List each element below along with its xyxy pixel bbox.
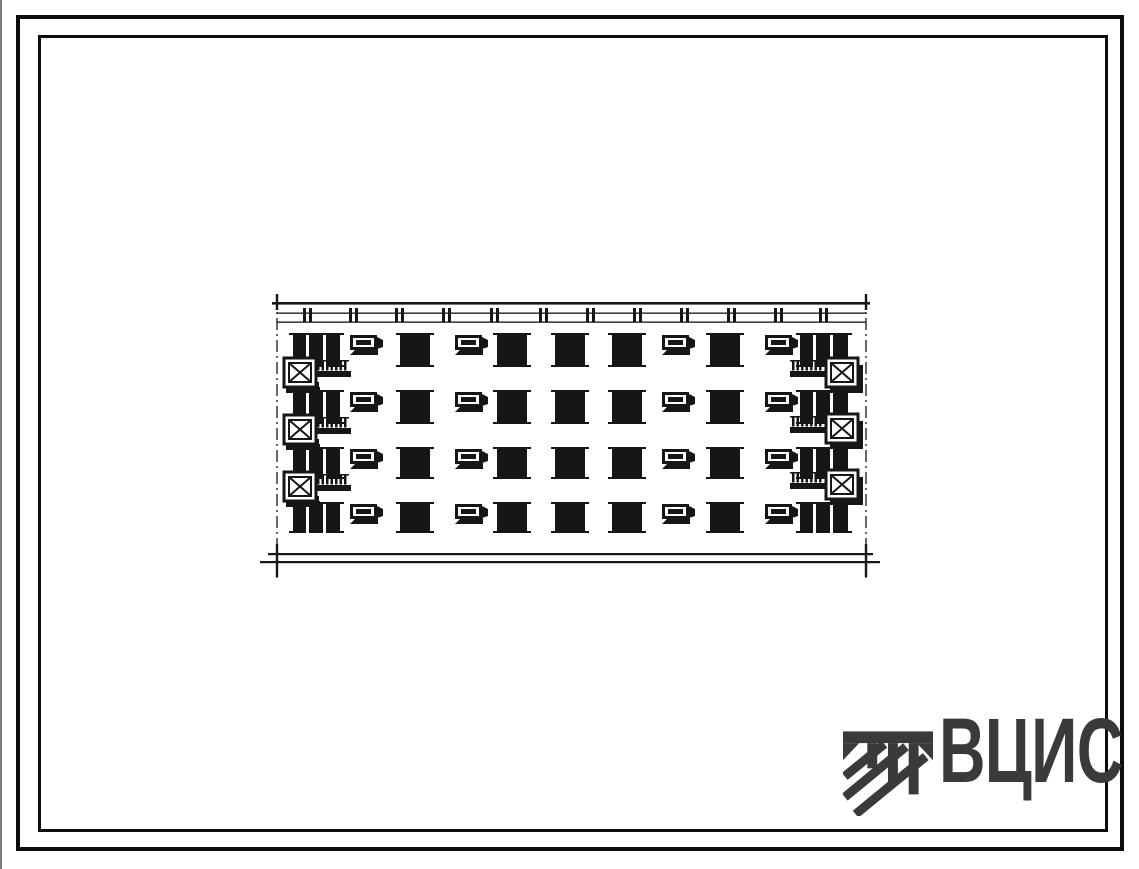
ground-line — [268, 553, 873, 555]
window-pane — [710, 502, 740, 533]
chimney-tick — [780, 308, 783, 322]
railing-top-rail — [315, 417, 349, 419]
chimney-tick — [395, 308, 398, 322]
vent-core — [668, 340, 683, 345]
window — [396, 333, 434, 367]
vent-window — [765, 335, 798, 355]
vent-latch — [377, 394, 383, 406]
balcony-left — [284, 358, 351, 393]
window — [608, 333, 646, 367]
vent-window — [765, 449, 798, 469]
railing-top-rail — [315, 360, 349, 362]
axis-ground-tick — [276, 544, 278, 577]
railing-baluster — [801, 474, 804, 483]
vent-latch — [792, 394, 798, 406]
window-pane — [612, 502, 642, 533]
vent-window — [455, 335, 488, 355]
vcis-logo-text: ВЦИС — [939, 708, 1123, 794]
chimney-tick — [490, 308, 493, 322]
balcony-left — [284, 472, 351, 507]
railing-baluster — [801, 418, 804, 427]
railing-top-rail — [790, 472, 824, 474]
window-pane — [555, 390, 585, 424]
window — [551, 447, 589, 479]
chimney-tick — [401, 308, 404, 322]
window-pane — [710, 447, 740, 479]
double-window — [796, 502, 852, 533]
railing-baluster — [331, 419, 334, 428]
scanned-drawing-sheet: ВЦИС — [0, 0, 1139, 869]
railing-baluster — [792, 418, 795, 427]
window-pane — [497, 502, 527, 533]
window-pane — [400, 333, 430, 367]
railing-baluster — [326, 419, 329, 428]
railing-baluster — [819, 418, 822, 427]
mullion-gap — [830, 504, 833, 533]
vent-core — [771, 397, 786, 402]
balcony-floor-slab — [315, 485, 351, 491]
window — [396, 390, 434, 424]
building-elevation-drawing — [260, 293, 880, 583]
vent-latch — [689, 451, 695, 463]
vent-window — [765, 392, 798, 412]
window — [608, 502, 646, 533]
vent-window — [350, 449, 383, 469]
balcony-left — [284, 415, 351, 450]
railing-baluster — [810, 362, 813, 371]
railing-baluster — [326, 362, 329, 371]
chimney-tick — [303, 308, 306, 322]
chimney-tick — [309, 308, 312, 322]
chimney-tick — [539, 308, 542, 322]
vent-latch — [482, 506, 488, 518]
vent-window — [350, 335, 383, 355]
vent-window — [662, 504, 695, 524]
balcony-floor-slab — [790, 427, 826, 433]
railing-baluster — [344, 419, 347, 428]
window — [551, 390, 589, 424]
chimney-tick — [819, 308, 822, 322]
vent-window — [455, 449, 488, 469]
window — [706, 390, 744, 424]
window-pane — [497, 333, 527, 367]
railing-baluster — [806, 474, 809, 483]
railing-baluster — [335, 362, 338, 371]
window — [551, 502, 589, 533]
window — [706, 447, 744, 479]
vent-core — [356, 340, 371, 345]
balcony-floor-slab — [790, 371, 826, 377]
vent-core — [771, 340, 786, 345]
chimney-tick — [592, 308, 595, 322]
scan-edge-artifact — [0, 0, 2, 869]
railing-baluster — [810, 418, 813, 427]
window-pane — [497, 447, 527, 479]
vent-window — [662, 335, 695, 355]
window — [706, 502, 744, 533]
railing-baluster — [797, 418, 800, 427]
vent-latch — [377, 451, 383, 463]
window-pane — [710, 333, 740, 367]
railing-baluster — [806, 362, 809, 371]
vent-core — [356, 397, 371, 402]
window — [608, 447, 646, 479]
ground-line — [260, 561, 880, 563]
chimney-tick — [448, 308, 451, 322]
chimney-tick — [686, 308, 689, 322]
railing-top-rail — [315, 474, 349, 476]
railing-baluster — [331, 476, 334, 485]
window — [706, 333, 744, 367]
vent-latch — [792, 337, 798, 349]
vent-window — [455, 392, 488, 412]
window-pane — [555, 333, 585, 367]
vent-core — [461, 340, 476, 345]
railing-baluster — [322, 476, 325, 485]
vent-window — [765, 504, 798, 524]
vent-window — [662, 449, 695, 469]
vent-core — [356, 454, 371, 459]
chimney-tick — [680, 308, 683, 322]
railing-baluster — [340, 419, 343, 428]
vcis-logo-icon — [843, 726, 933, 816]
chimney-tick — [733, 308, 736, 322]
chimney-tick — [774, 308, 777, 322]
axis-ground-tick — [865, 544, 867, 577]
vent-core — [771, 509, 786, 514]
window-pane — [400, 502, 430, 533]
vent-core — [461, 509, 476, 514]
railing-baluster — [326, 476, 329, 485]
chimney-tick — [727, 308, 730, 322]
balcony-floor-slab — [315, 428, 351, 434]
railing-baluster — [344, 476, 347, 485]
mullion-gap — [306, 504, 309, 533]
building-elevation-svg — [260, 293, 880, 583]
vent-window — [350, 392, 383, 412]
railing-baluster — [819, 474, 822, 483]
chimney-tick — [633, 308, 636, 322]
window — [396, 502, 434, 533]
window-pane — [612, 447, 642, 479]
railing-baluster — [797, 474, 800, 483]
vent-latch — [792, 506, 798, 518]
window-pane — [400, 390, 430, 424]
balcony-floor-slab — [315, 371, 351, 377]
railing-baluster — [322, 419, 325, 428]
window-pane — [555, 447, 585, 479]
vent-latch — [792, 451, 798, 463]
window — [493, 333, 531, 367]
vent-window — [662, 392, 695, 412]
railing-baluster — [340, 362, 343, 371]
vent-latch — [689, 394, 695, 406]
vent-latch — [377, 337, 383, 349]
vent-core — [461, 454, 476, 459]
chimney-tick — [586, 308, 589, 322]
vcis-logo: ВЦИС — [843, 720, 1139, 816]
vent-core — [668, 454, 683, 459]
railing-baluster — [801, 362, 804, 371]
railing-baluster — [792, 474, 795, 483]
vent-latch — [482, 451, 488, 463]
railing-baluster — [344, 362, 347, 371]
railing-baluster — [815, 474, 818, 483]
cornice-line — [277, 313, 866, 314]
vent-core — [461, 397, 476, 402]
vent-window — [455, 504, 488, 524]
railing-baluster — [819, 362, 822, 371]
mullion-gap — [813, 504, 816, 533]
railing-baluster — [335, 476, 338, 485]
vent-core — [356, 509, 371, 514]
cornice-line — [277, 322, 866, 323]
railing-baluster — [792, 362, 795, 371]
chimney-tick — [349, 308, 352, 322]
window — [608, 390, 646, 424]
railing-baluster — [810, 474, 813, 483]
chimney-tick — [825, 308, 828, 322]
mullion-gap — [323, 504, 326, 533]
window-pane — [612, 390, 642, 424]
vent-core — [668, 397, 683, 402]
vent-core — [771, 454, 786, 459]
railing-baluster — [815, 418, 818, 427]
vent-latch — [689, 506, 695, 518]
vent-window — [350, 504, 383, 524]
window — [493, 390, 531, 424]
window-pane — [555, 502, 585, 533]
railing-top-rail — [790, 416, 824, 418]
railing-baluster — [340, 476, 343, 485]
window-pane — [400, 447, 430, 479]
vent-core — [668, 509, 683, 514]
railing-baluster — [335, 419, 338, 428]
railing-baluster — [815, 362, 818, 371]
vent-latch — [482, 337, 488, 349]
railing-baluster — [797, 362, 800, 371]
window — [493, 447, 531, 479]
window — [493, 502, 531, 533]
window — [396, 447, 434, 479]
roof-line — [272, 302, 870, 305]
railing-baluster — [322, 362, 325, 371]
balcony-floor-slab — [790, 483, 826, 489]
window-pane — [497, 390, 527, 424]
vent-latch — [482, 394, 488, 406]
chimney-tick — [545, 308, 548, 322]
chimney-tick — [639, 308, 642, 322]
railing-baluster — [806, 418, 809, 427]
railing-top-rail — [790, 360, 824, 362]
chimney-tick — [496, 308, 499, 322]
window-pane — [800, 502, 848, 533]
railing-baluster — [331, 362, 334, 371]
window-pane — [612, 333, 642, 367]
vent-latch — [689, 337, 695, 349]
chimney-tick — [442, 308, 445, 322]
vent-latch — [377, 506, 383, 518]
window-pane — [710, 390, 740, 424]
window — [551, 333, 589, 367]
chimney-tick — [355, 308, 358, 322]
